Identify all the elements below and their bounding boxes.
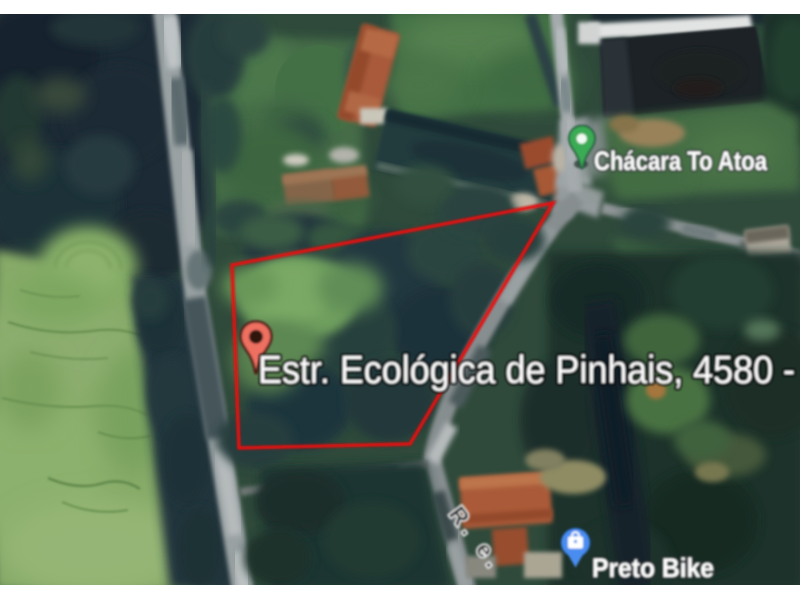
svg-text:Estr. Ecológica de Pinhais, 45: Estr. Ecológica de Pinhais, 4580 -: [258, 349, 795, 392]
svg-text:Chácara To Atoa: Chácara To Atoa: [594, 146, 767, 176]
svg-text:Preto Bike: Preto Bike: [592, 553, 714, 583]
